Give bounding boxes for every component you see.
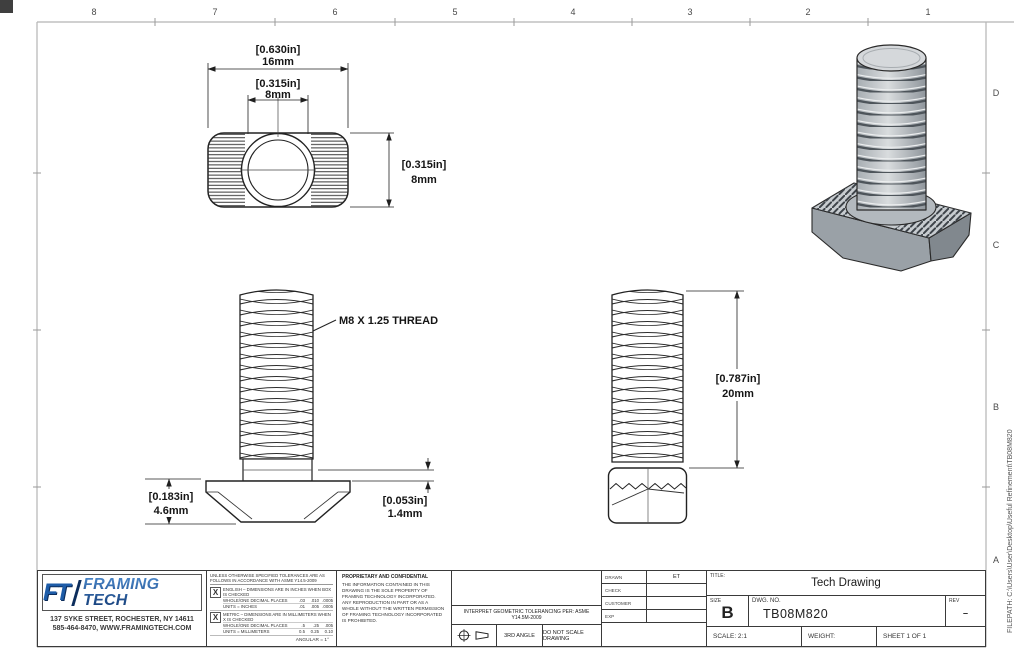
standards-cell: INTERPRET GEOMETRIC TOLERANCING PER: ASM… xyxy=(451,571,601,646)
drawing-title: Tech Drawing xyxy=(707,571,985,595)
top-width-in-label: [0.630in] xyxy=(256,44,301,56)
side-view: [0.787in] 20mm xyxy=(609,290,767,523)
tolerance-table: UNLESS OTHERWISE SPECIFIED TOLERANCES AR… xyxy=(206,571,336,646)
interpret-note: INTERPRET GEOMETRIC TOLERANCING PER: ASM… xyxy=(452,605,601,624)
sheet-label: SHEET 1 OF 1 xyxy=(877,627,985,646)
company-logo: FT FRAMING TECH xyxy=(42,574,202,611)
front-view: M8 X 1.25 THREAD [0.183in] 4.6mm [0.053i… xyxy=(145,290,438,524)
side-length-in-label: [0.787in] xyxy=(716,373,761,385)
company-address-line2: 585-464-8470, WWW.FRAMINGTECH.COM xyxy=(42,624,202,633)
rev-value: – xyxy=(963,608,968,618)
tolerance-english-group: X ENGLISH – DIMENSIONS ARE IN INCHES WHE… xyxy=(210,586,333,611)
thread-callout-leader xyxy=(313,320,336,331)
logo-slash-icon xyxy=(72,580,82,606)
projection-icon xyxy=(456,628,492,643)
proprietary-body: THE INFORMATION CONTAINED IN THIS DRAWIN… xyxy=(342,582,446,624)
weight-label: WEIGHT: xyxy=(802,627,877,646)
top-width-mm-label: 16mm xyxy=(262,56,294,68)
metric-label: METRIC – DIMENSIONS ARE IN MILLIMETERS W… xyxy=(223,612,333,622)
size-value: B xyxy=(721,603,733,623)
logo-monogram: FT xyxy=(43,581,68,605)
top-height-mm-label: 8mm xyxy=(411,174,437,186)
field-row-exp: EXP xyxy=(602,610,706,623)
third-angle-symbol xyxy=(452,625,496,646)
filepath-label: FILEPATH: C:\Users\User\Desktop\Useful R… xyxy=(1007,429,1014,633)
zone-c: C xyxy=(993,240,1000,250)
metric-checkbox: X xyxy=(210,612,221,623)
proprietary-title: PROPRIETARY AND CONFIDENTIAL xyxy=(342,574,446,580)
side-length-mm-label: 20mm xyxy=(722,388,754,400)
do-not-scale-label: DO NOT SCALE DRAWING xyxy=(542,625,601,646)
top-slot-mm-label: 8mm xyxy=(265,89,291,101)
front-lip-mm-label: 1.4mm xyxy=(388,508,423,520)
zone-7: 7 xyxy=(212,7,217,17)
corner-mark xyxy=(0,0,13,13)
dwg-number: TB08M820 xyxy=(763,607,828,621)
english-checkbox: X xyxy=(210,587,221,598)
dim-head-height xyxy=(350,133,394,207)
front-lip-in-label: [0.053in] xyxy=(383,495,428,507)
zone-2: 2 xyxy=(805,7,810,17)
company-address-line1: 137 SYKE STREET, ROCHESTER, NY 14611 xyxy=(42,615,202,624)
zone-b: B xyxy=(993,402,999,412)
title-label: TITLE: xyxy=(710,573,725,579)
company-cell: FT FRAMING TECH 137 SYKE STREET, ROCHEST… xyxy=(38,571,206,646)
zone-d: D xyxy=(993,88,1000,98)
zone-6: 6 xyxy=(332,7,337,17)
zone-5: 5 xyxy=(452,7,457,17)
tolerance-header: UNLESS OTHERWISE SPECIFIED TOLERANCES AR… xyxy=(210,573,333,585)
zone-8: 8 xyxy=(91,7,96,17)
dwg-no-cell: DWG. NO. TB08M820 xyxy=(749,596,945,626)
drawn-value: ET xyxy=(647,571,706,583)
top-height-in-label: [0.315in] xyxy=(402,159,447,171)
field-row-check: CHECK xyxy=(602,584,706,597)
field-row-customer: CUSTOMER xyxy=(602,597,706,610)
drawing-canvas: 8 7 6 5 4 3 2 1 D C B A FILEPATH: C:\Use… xyxy=(0,0,1024,662)
size-cell: SIZE B xyxy=(707,596,749,626)
english-label: ENGLISH – DIMENSIONS ARE IN INCHES WHEN … xyxy=(223,587,333,597)
top-view: [0.630in] 16mm [0.315in] 8mm [0.315in] 8… xyxy=(208,44,447,207)
third-angle-label: 3RD ANGLE xyxy=(496,625,542,646)
zone-3: 3 xyxy=(687,7,692,17)
angular-tolerance: ANGULAR = 1° xyxy=(210,638,333,643)
title-area: TITLE: Tech Drawing SIZE B DWG. NO. TB08… xyxy=(706,571,985,646)
zone-1: 1 xyxy=(925,7,930,17)
front-head-in-label: [0.183in] xyxy=(149,491,194,503)
scale-label: SCALE: 2:1 xyxy=(707,627,802,646)
thread-callout-label: M8 X 1.25 THREAD xyxy=(339,315,438,327)
zone-a: A xyxy=(993,555,999,565)
front-head-mm-label: 4.6mm xyxy=(154,505,189,517)
logo-name: FRAMING TECH xyxy=(83,577,201,609)
tolerance-metric-group: X METRIC – DIMENSIONS ARE IN MILLIMETERS… xyxy=(210,611,333,636)
proprietary-notice: PROPRIETARY AND CONFIDENTIAL THE INFORMA… xyxy=(336,571,451,646)
isometric-view xyxy=(812,45,971,271)
title-block: FT FRAMING TECH 137 SYKE STREET, ROCHEST… xyxy=(37,570,986,647)
field-row-drawn: DRAWN ET xyxy=(602,571,706,584)
rev-cell: REV – xyxy=(945,596,985,626)
zone-4: 4 xyxy=(570,7,575,17)
approval-fields: DRAWN ET CHECK CUSTOMER EXP xyxy=(601,571,706,646)
